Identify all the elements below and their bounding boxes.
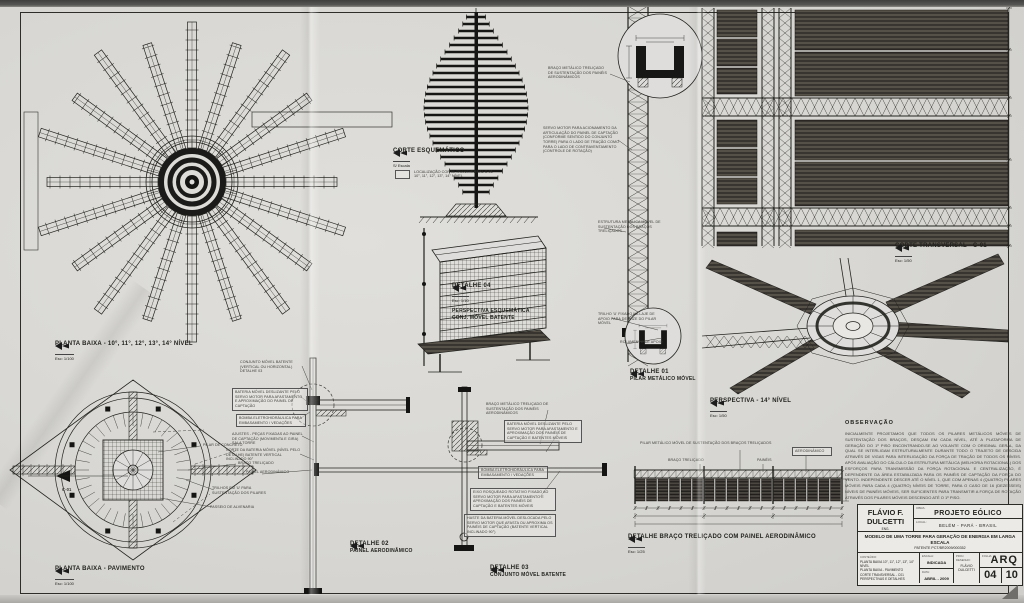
date-value: ABRIL - 2009 [922, 576, 951, 581]
author-cell: FLÁVIO F. DULCETTI ENG. [858, 505, 914, 531]
description-text: MODELO DE UMA TORRE PARA GERAÇÃO DE ENER… [860, 534, 1020, 545]
annotation: TRILHO 'U' FIXADO NA LAJE DE APOIO PARA … [598, 312, 660, 326]
caption-scale: Esc: 1/50 [710, 411, 727, 418]
observation-title: OBSERVAÇÃO [845, 420, 1021, 426]
scale-date-cell: ESCALA: INDICADA DATA: ABRIL - 2009 [920, 553, 954, 583]
annotation: CORTE DA BATERIA MÓVEL (NÍVEL PELO DETAL… [226, 448, 302, 462]
author-subtitle: ENG. [858, 527, 913, 531]
annotation: BRAÇO METÁLICO TRELIÇADO DE SUSTENTAÇÃO … [486, 402, 558, 416]
caption-corte-transversal: CORTE TRANSVERSAL - C-01 Esc: 1/50 [895, 243, 987, 267]
description-cell: MODELO DE UMA TORRE PARA GERAÇÃO DE ENER… [858, 532, 1022, 553]
annotation: PILAR DE CONCRETO [203, 443, 253, 448]
legend-swatch [395, 170, 410, 179]
caption-line3: CONJ. MÓVEL BATENTE [452, 315, 530, 321]
caption-scale: Esc: 1/100 [55, 579, 74, 586]
scale-label: ESCALA: [922, 554, 951, 558]
scale-value: INDICADA [922, 560, 951, 565]
caption-scale: Esc: 1/25 [628, 547, 645, 554]
scale-marker-icon [628, 535, 642, 543]
scale-marker-icon [490, 566, 504, 574]
project-name: PROJETO EÓLICO [914, 510, 1022, 517]
designer-value: FLÁVIO DULCETTI [956, 564, 977, 573]
project-label: OBRA: [916, 506, 925, 510]
scale-marker-icon [55, 567, 69, 575]
annotation: HASTE DA BATERIA MÓVEL DESLOCADA PELO SE… [464, 514, 556, 537]
sheet-label: FOLHA: [982, 554, 992, 558]
caption-perspectiva: PERSPECTIVA - 14° NÍVEL Esc: 1/50 [710, 398, 791, 422]
caption-detalhe02: DETALHE 02 PAINEL AERODINÂMICO [350, 541, 413, 554]
annotation: CONJUNTO MÓVEL BATENTE (VERTICAL OU HORI… [240, 360, 304, 374]
scale-marker-icon [393, 149, 407, 157]
annotation: PAINÉIS [757, 458, 787, 463]
caption-braco-trelicado: DETALHE BRAÇO TRELIÇADO COM PAINEL AEROD… [628, 534, 816, 558]
scale-marker-icon [452, 284, 466, 292]
sheet-number: 04 [980, 568, 1002, 583]
location-label: LOCAL: [916, 520, 927, 524]
caption-detalhe03: DETALHE 03 CONJUNTO MÓVEL BATENTE [490, 565, 566, 578]
scale-marker-icon [350, 542, 364, 550]
sheet-total: 10 [1002, 568, 1023, 583]
title-block: FLÁVIO F. DULCETTI ENG. OBRA: PROJETO EÓ… [857, 504, 1023, 586]
annotation: SERVO MOTOR PARA ACIONAMENTO DA ARTICULA… [543, 126, 619, 154]
patent-text: PATENTE PCT/BR2009/000352 [860, 546, 1020, 550]
legend-line2: 10°, 11°, 12°, 13°, 14° NÍVEL [414, 174, 493, 178]
contents-line: PERSPECTIVAS E DETALHES [860, 577, 917, 581]
section-locator-legend: LOCALIZAÇÃO CORTE TRANSVERSAL C-01 10°, … [395, 170, 493, 179]
annotation: BRAÇO TRELIÇADO [238, 461, 288, 466]
annotation: ROLAMENTO DE APOIO [620, 340, 668, 345]
blueprint-sheet: PLANTA BAIXA - 10°, 11°, 12°, 13°, 14° N… [0, 0, 1024, 603]
caption-corte-esquematico: CORTE ESQUEMÁTICO S/ Escala [393, 148, 465, 172]
caption-title: PLANTA BAIXA - 10°, 11°, 12°, 13°, 14° N… [55, 341, 193, 347]
annotation: PAINEL AERODINÂMICO [246, 470, 306, 475]
date-label: DATA: [922, 570, 951, 574]
annotation: ESTRUTURA METÁLICA MÓVEL DE SUSTENTAÇÃO … [598, 220, 666, 234]
scan-edge-top [0, 0, 1024, 7]
contents-label: CONTEÚDO: [860, 555, 877, 559]
caption-line2: PERSPECTIVA ESQUEMÁTICA [452, 308, 530, 314]
author-name: FLÁVIO F. DULCETTI [858, 509, 913, 526]
observation-block: OBSERVAÇÃO INICIALMENTE PROJETAMOS QUE T… [845, 420, 1021, 501]
annotation: BATERIA MÓVEL DESLIZANTE PELO SERVO MOTO… [232, 388, 308, 411]
annotation: BATERIA MÓVEL DESLIZANTE PELO SERVO MOTO… [504, 420, 582, 443]
scale-marker-icon [55, 342, 69, 350]
observation-body: INICIALMENTE PROJETAMOS QUE TODOS OS PIL… [845, 431, 1021, 501]
sheet-discipline: ARQ [991, 554, 1018, 566]
contents-line: PLANTA BAIXA 10°, 11°, 12°, 13°, 14° NÍV… [860, 560, 917, 569]
designer-cell: PROJ. DESENHO: FLÁVIO DULCETTI [954, 553, 980, 583]
annotation: BRAÇO METÁLICO TRELIÇADO DE SUSTENTAÇÃO … [548, 66, 610, 80]
designer-label: PROJ. DESENHO: [956, 554, 977, 562]
scan-edge-bottom [0, 595, 1024, 603]
scale-marker-icon [710, 399, 724, 407]
annotation: EIXO ROSQUEADO ROTATIVO FIXADO AO SERVO … [470, 488, 556, 511]
caption-planta-niveis: PLANTA BAIXA - 10°, 11°, 12°, 13°, 14° N… [55, 341, 193, 365]
sheet-number-cell: FOLHA: ARQ 04 10 [980, 553, 1022, 583]
annotation: TRILHOS EM 'U' PARA SUSTENTAÇÃO DOS PILA… [212, 486, 270, 495]
section-marker-label: C-01 [62, 487, 86, 492]
annotation: PASSEIO DE ALVENARIA [210, 505, 264, 510]
scale-marker-icon [895, 244, 909, 252]
caption-scale: Esc: 1/10 [452, 296, 469, 303]
annotation: PILAR METÁLICO MÓVEL DE SUSTENTAÇÃO DOS … [640, 441, 790, 446]
corner-fold [1002, 585, 1018, 599]
project-cell: OBRA: PROJETO EÓLICO LOCAL: BELÉM - PARÁ… [914, 505, 1022, 531]
location-value: BELÉM - PARÁ - BRASIL [914, 523, 1022, 528]
caption-title: DETALHE BRAÇO TRELIÇADO COM PAINEL AEROD… [628, 534, 816, 540]
annotation: BOMBA ELETROHIDRÁULICA PARA EMBASAMENTO … [236, 414, 306, 427]
caption-scale: Esc: 1/100 [55, 354, 74, 361]
scale-marker-icon [630, 370, 644, 378]
caption-detalhe01: DETALHE 01 PILAR METÁLICO MÓVEL [630, 369, 696, 382]
contents-cell: CONTEÚDO: PLANTA BAIXA 10°, 11°, 12°, 13… [858, 553, 920, 583]
annotation: AERODINÂMICO [792, 447, 832, 456]
caption-scale: Esc: 1/50 [895, 256, 912, 263]
caption-detalhe04: DETALHE 04 Esc: 1/10 PERSPECTIVA ESQUEMÁ… [452, 283, 530, 321]
caption-planta-pavimento: PLANTA BAIXA - PAVIMENTO Esc: 1/100 [55, 566, 145, 590]
annotation: BRAÇO TRELIÇADO [668, 458, 712, 463]
annotation: BOMBA ELETROHIDRÁULICA PARA EMBASAMENTO … [478, 466, 548, 479]
caption-scale: S/ Escala [393, 161, 410, 168]
